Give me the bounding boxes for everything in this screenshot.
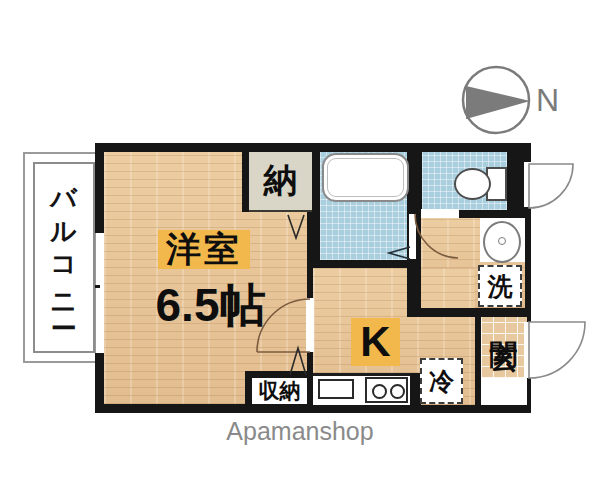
folding-door-icon-storage <box>288 215 304 238</box>
plan-symbols <box>0 0 600 480</box>
door-swing-washroom <box>415 214 458 258</box>
watermark: Apamanshop <box>225 417 375 446</box>
kitchen-label: K <box>351 318 400 366</box>
balcony-label: バルコニー <box>47 168 82 321</box>
main-room-label: 洋室 <box>158 230 250 269</box>
floor-plan: 洗 冷 納 洋室 6.5帖 K 収納 玄関 バルコニー N Apa <box>0 0 600 480</box>
closet-label: 収納 <box>252 378 307 404</box>
folding-door-icon-bath <box>389 247 410 259</box>
door-swing-exterior-top <box>529 164 573 208</box>
compass-north-label: N <box>536 82 559 119</box>
main-room-size-label: 6.5帖 <box>133 280 288 332</box>
storage-room-label: 納 <box>249 152 312 210</box>
door-swing-entrance <box>529 322 585 378</box>
